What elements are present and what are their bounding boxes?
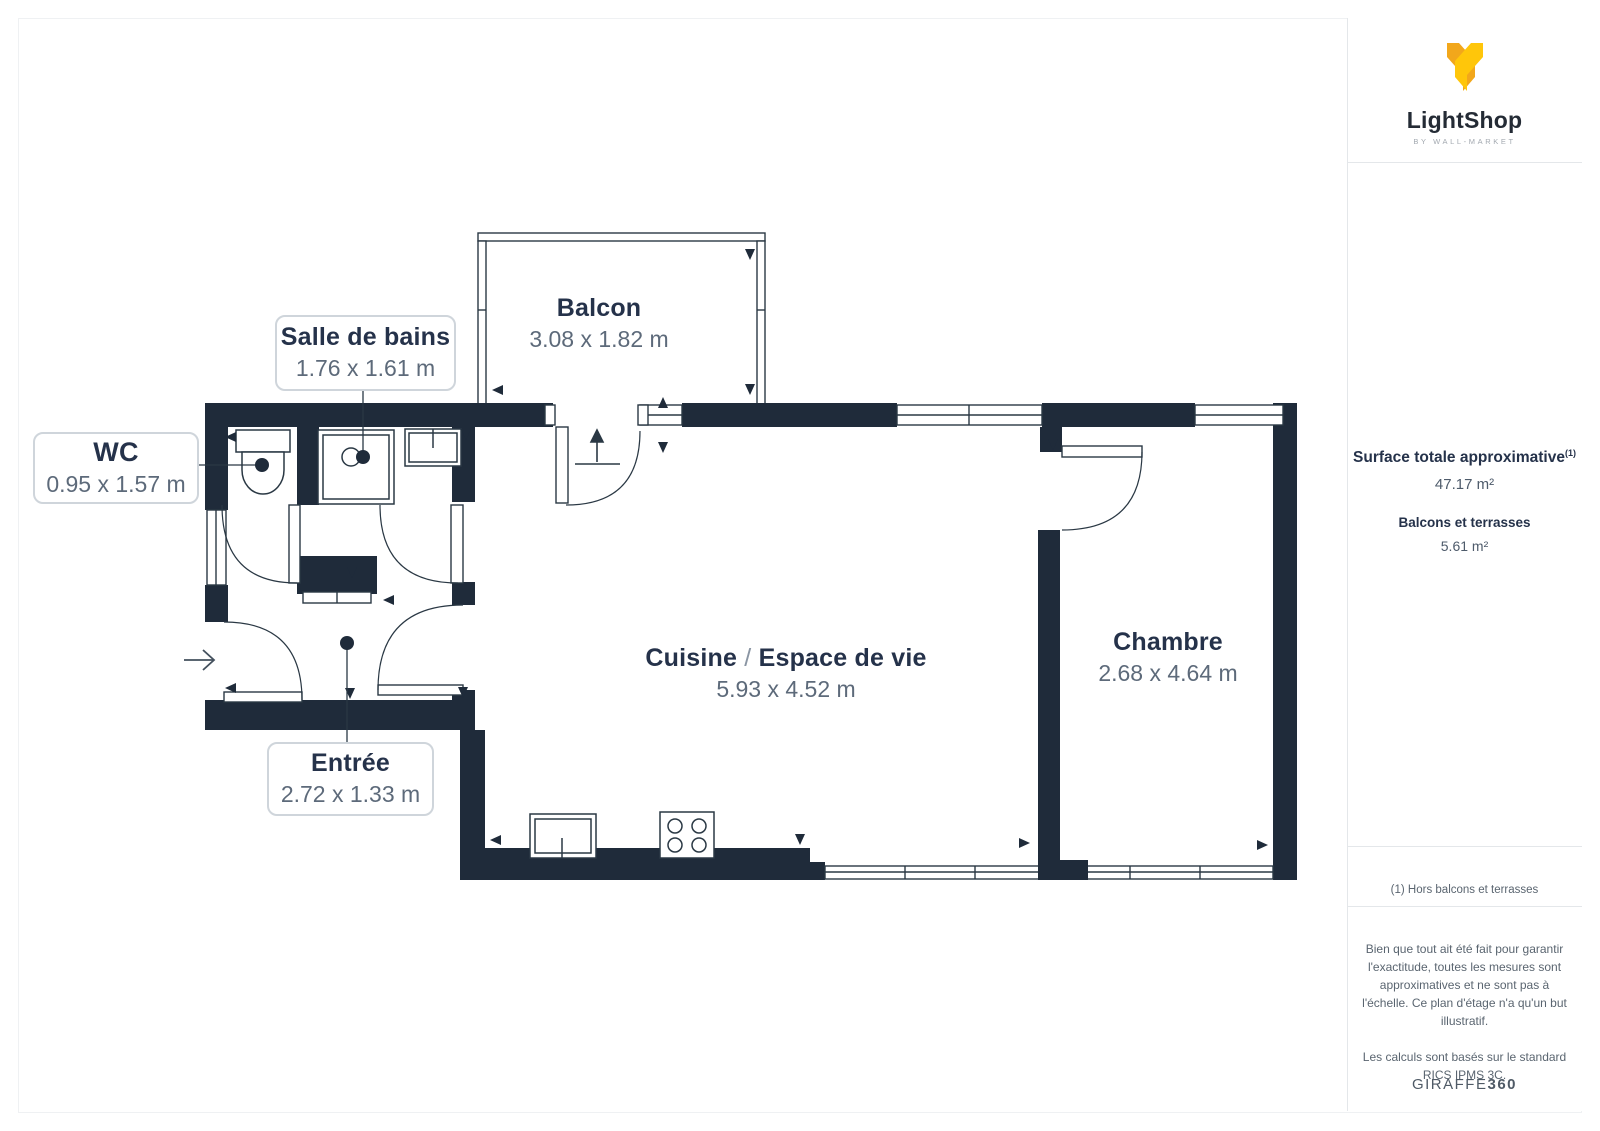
room-label-cuisine: Cuisine / Espace de vie 5.93 x 4.52 m bbox=[645, 644, 926, 704]
lightshop-logo: LightShop BY WALL-MARKET bbox=[1347, 42, 1582, 146]
entry-arrow-icon bbox=[184, 650, 214, 670]
room-title: Entrée bbox=[311, 749, 390, 778]
logo-name: LightShop bbox=[1347, 107, 1582, 134]
toilet-icon bbox=[236, 430, 290, 452]
giraffe360-brand: GIRAFFE360 bbox=[1347, 1076, 1582, 1093]
sidebar-divider bbox=[1347, 18, 1348, 1111]
room-dims: 5.93 x 4.52 m bbox=[645, 675, 926, 704]
balcony-surface-value: 5.61 m² bbox=[1347, 538, 1582, 554]
footnote-marker: (1) bbox=[1565, 448, 1576, 458]
room-title: Salle de bains bbox=[281, 323, 451, 352]
info-sidebar: LightShop BY WALL-MARKET Surface totale … bbox=[1347, 18, 1582, 1111]
floorplan-drawing bbox=[0, 0, 1347, 1131]
divider bbox=[1347, 906, 1582, 907]
room-label-salle-de-bains: Salle de bains 1.76 x 1.61 m bbox=[275, 315, 456, 391]
floorplan-page: Salle de bains 1.76 x 1.61 m WC 0.95 x 1… bbox=[0, 0, 1600, 1131]
room-dims: 2.72 x 1.33 m bbox=[281, 780, 420, 809]
room-label-balcon: Balcon 3.08 x 1.82 m bbox=[529, 294, 668, 354]
balcony-surface-title: Balcons et terrasses bbox=[1347, 515, 1582, 530]
room-dims: 0.95 x 1.57 m bbox=[46, 470, 185, 499]
room-dims: 3.08 x 1.82 m bbox=[529, 325, 668, 354]
surface-summary: Surface totale approximative(1) 47.17 m²… bbox=[1347, 448, 1582, 554]
room-label-wc: WC 0.95 x 1.57 m bbox=[33, 432, 199, 504]
room-label-entree: Entrée 2.72 x 1.33 m bbox=[267, 742, 434, 816]
logo-tagline: BY WALL-MARKET bbox=[1347, 137, 1582, 146]
balcony-step-arrow bbox=[575, 430, 620, 464]
room-dims: 2.68 x 4.64 m bbox=[1098, 659, 1237, 688]
footnote: (1) Hors balcons et terrasses bbox=[1347, 884, 1582, 896]
surface-total-title: Surface totale approximative(1) bbox=[1347, 448, 1582, 467]
disclaimer-text-1: Bien que tout ait été fait pour garantir… bbox=[1361, 940, 1568, 1030]
divider bbox=[1347, 846, 1582, 847]
divider bbox=[1347, 162, 1582, 163]
room-dims: 1.76 x 1.61 m bbox=[296, 354, 435, 383]
room-title: Chambre bbox=[1098, 628, 1237, 657]
lightshop-logo-icon bbox=[1441, 42, 1489, 98]
room-title: Cuisine / Espace de vie bbox=[645, 644, 926, 673]
room-label-chambre: Chambre 2.68 x 4.64 m bbox=[1098, 628, 1237, 688]
room-title: Balcon bbox=[529, 294, 668, 323]
surface-total-value: 47.17 m² bbox=[1347, 476, 1582, 493]
stove-icon bbox=[660, 812, 714, 858]
room-title: WC bbox=[93, 437, 138, 468]
